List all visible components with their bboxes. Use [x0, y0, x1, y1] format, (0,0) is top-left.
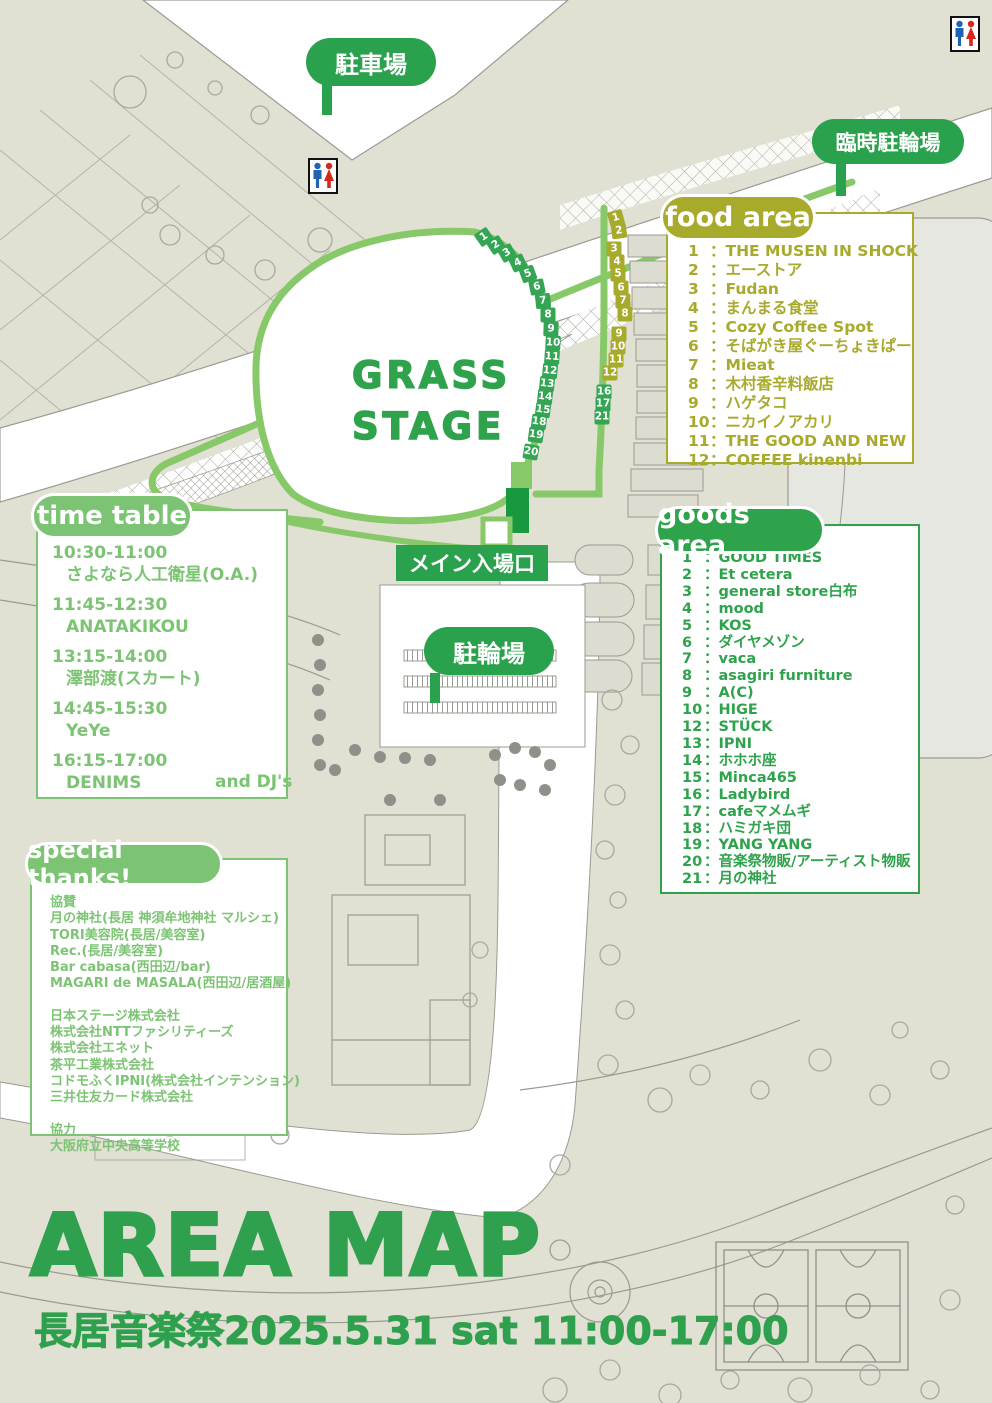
- stall-marker-food: 12: [603, 366, 618, 381]
- goods-list-item: 18：ハミガキ団: [682, 821, 911, 838]
- separator: ：: [704, 685, 719, 701]
- stall-marker-goods: 19: [528, 427, 545, 444]
- stall-marker-goods: 8: [541, 308, 556, 323]
- special-thanks-header: special thanks!: [25, 842, 223, 886]
- entrance-gate-light: [511, 462, 532, 489]
- goods-area-header: goods area: [655, 506, 825, 554]
- area-map-poster: 123456789101112131415181920 123456789101…: [0, 0, 992, 1403]
- goods-list-item: 3：general store白布: [682, 584, 911, 601]
- stall-marker-goods: 20: [522, 443, 539, 460]
- slot-time: 14:45-15:30: [52, 698, 258, 720]
- thanks-line: 日本ステージ株式会社: [50, 1009, 300, 1025]
- separator: ：: [710, 242, 726, 260]
- separator: ：: [710, 375, 726, 393]
- separator: ：: [704, 837, 719, 853]
- thanks-line: [50, 1107, 300, 1123]
- food-list-item: 5：Cozy Coffee Spot: [688, 318, 918, 337]
- thanks-line: Rec.(長居/美容室): [50, 944, 300, 960]
- separator: ：: [704, 635, 719, 651]
- goods-list-item: 20：音楽祭物販/アーティスト物販: [682, 854, 911, 871]
- food-list-item: 11：THE GOOD AND NEW: [688, 432, 918, 451]
- separator: ：: [704, 804, 719, 820]
- slot-artist: 澤部渡(スカート): [52, 668, 258, 690]
- separator: ：: [704, 719, 719, 735]
- slot-artist: YeYe: [52, 720, 258, 742]
- time-slot: 11:45-12:30 ANATAKIKOU: [52, 594, 258, 638]
- separator: ：: [704, 702, 719, 718]
- separator: ：: [710, 337, 726, 355]
- food-area-list: 1：THE MUSEN IN SHOCK2：エーストア3：Fudan4：まんまる…: [688, 242, 918, 470]
- goods-list-item: 12：STÜCK: [682, 719, 911, 736]
- goods-list-item: 10：HIGE: [682, 702, 911, 719]
- temp-bike-pointer-stem: [836, 162, 846, 196]
- stall-marker-goods: 21: [595, 410, 610, 425]
- food-list-item: 3：Fudan: [688, 280, 918, 299]
- goods-list-item: 14：ホホホ座: [682, 753, 911, 770]
- goods-list-item: 7：vaca: [682, 651, 911, 668]
- separator: ：: [704, 753, 719, 769]
- page-title: AREA MAP: [30, 1196, 541, 1296]
- separator: ：: [704, 668, 719, 684]
- goods-list-item: 2：Et cetera: [682, 567, 911, 584]
- goods-list-item: 16：Ladybird: [682, 787, 911, 804]
- food-area-header: food area: [660, 194, 816, 241]
- thanks-line: TORI美容院(長居/美容室): [50, 928, 300, 944]
- separator: ：: [710, 280, 726, 298]
- food-list-item: 1：THE MUSEN IN SHOCK: [688, 242, 918, 261]
- separator: ：: [704, 584, 719, 600]
- time-slot: 14:45-15:30 YeYe: [52, 698, 258, 742]
- food-list-item: 8：木村香辛料飯店: [688, 375, 918, 394]
- goods-list-item: 4：mood: [682, 601, 911, 618]
- time-slot: 13:15-14:00 澤部渡(スカート): [52, 646, 258, 690]
- separator: ：: [710, 356, 726, 374]
- goods-list-item: 6：ダイヤメゾン: [682, 635, 911, 652]
- thanks-line: 株式会社NTTファシリティーズ: [50, 1025, 300, 1041]
- goods-list-item: 15：Minca465: [682, 770, 911, 787]
- slot-time: 10:30-11:00: [52, 542, 258, 564]
- temp-bike-parking-label: 臨時駐輪場: [812, 119, 964, 164]
- page-subtitle: 長居音楽祭2025.5.31 sat 11:00-17:00: [34, 1300, 789, 1355]
- thanks-line: コドモふくIPNI(株式会社インテンション): [50, 1074, 300, 1090]
- thanks-line: 協賛: [50, 895, 300, 911]
- thanks-line: 大阪府立中央高等学校: [50, 1139, 300, 1155]
- separator: ：: [704, 821, 719, 837]
- slot-artist: さよなら人工衛星(O.A.): [52, 564, 258, 586]
- separator: ：: [704, 618, 719, 634]
- separator: ：: [710, 451, 726, 469]
- goods-list-item: 9：A(C): [682, 685, 911, 702]
- separator: ：: [704, 736, 719, 752]
- goods-list-item: 19：YANG YANG: [682, 837, 911, 854]
- separator: ：: [710, 318, 726, 336]
- separator: ：: [710, 299, 726, 317]
- separator: ：: [710, 261, 726, 279]
- grass-stage-label: GRASS STAGE: [352, 350, 511, 452]
- restroom-icon: [308, 158, 338, 194]
- stage-line1: GRASS: [352, 350, 511, 401]
- thanks-line: MAGARI de MASALA(西田辺/居酒屋): [50, 976, 300, 992]
- food-list-item: 2：エーストア: [688, 261, 918, 280]
- special-thanks-list: 協賛月の神社(長居 神須牟地神社 マルシェ)TORI美容院(長居/美容室)Rec…: [50, 895, 300, 1155]
- thanks-line: 株式会社エネット: [50, 1041, 300, 1057]
- separator: ：: [704, 770, 719, 786]
- stage-line2: STAGE: [352, 401, 511, 452]
- slot-time: 16:15-17:00: [52, 750, 258, 772]
- food-list-item: 6：そばがき屋ぐーちょきぱー: [688, 337, 918, 356]
- parking-label: 駐車場: [306, 38, 436, 86]
- separator: ：: [704, 871, 719, 887]
- food-list-item: 9：ハゲタコ: [688, 394, 918, 413]
- food-list-item: 10：ニカイノアカリ: [688, 413, 918, 432]
- goods-list-item: 13：IPNI: [682, 736, 911, 753]
- slot-artist: ANATAKIKOU: [52, 616, 258, 638]
- goods-list-item: 5：KOS: [682, 618, 911, 635]
- parking-pointer-stem: [322, 84, 332, 115]
- entrance-box: [483, 519, 510, 546]
- stall-marker-food: 2: [611, 223, 628, 240]
- separator: ：: [710, 394, 726, 412]
- separator: ：: [704, 651, 719, 667]
- goods-list-item: 17：cafeマメムギ: [682, 804, 911, 821]
- thanks-line: 茶平工業株式会社: [50, 1058, 300, 1074]
- stall-marker-food: 8: [618, 307, 633, 322]
- bike-pointer-stem: [430, 673, 440, 703]
- restroom-icon: [950, 16, 980, 52]
- slot-time: 13:15-14:00: [52, 646, 258, 668]
- separator: ：: [704, 787, 719, 803]
- goods-area-list: 1：GOOD TIMES2：Et cetera3：general store白布…: [682, 550, 911, 888]
- time-slot: 10:30-11:00 さよなら人工衛星(O.A.): [52, 542, 258, 586]
- thanks-line: 三井住友カード株式会社: [50, 1090, 300, 1106]
- food-list-item: 4：まんまる食堂: [688, 299, 918, 318]
- time-table-header: time table: [31, 493, 193, 539]
- time-table-footer: and DJ's: [215, 772, 292, 792]
- food-list-item: 12：COFFEE kinenbi: [688, 451, 918, 470]
- separator: ：: [704, 567, 719, 583]
- main-entrance-label: メイン入場口: [396, 545, 548, 581]
- stall-marker-food: 5: [611, 267, 626, 282]
- separator: ：: [710, 413, 726, 431]
- slot-time: 11:45-12:30: [52, 594, 258, 616]
- thanks-line: 協力: [50, 1123, 300, 1139]
- separator: ：: [710, 432, 726, 450]
- goods-list-item: 21：月の神社: [682, 871, 911, 888]
- separator: ：: [704, 854, 719, 870]
- thanks-line: [50, 993, 300, 1009]
- goods-list-item: 8：asagiri furniture: [682, 668, 911, 685]
- time-table-list: 10:30-11:00 さよなら人工衛星(O.A.) 11:45-12:30 A…: [52, 542, 258, 802]
- food-list-item: 7：Mieat: [688, 356, 918, 375]
- thanks-line: 月の神社(長居 神須牟地神社 マルシェ): [50, 911, 300, 927]
- bike-parking-label: 駐輪場: [424, 627, 554, 675]
- separator: ：: [704, 601, 719, 617]
- thanks-line: Bar cabasa(西田辺/bar): [50, 960, 300, 976]
